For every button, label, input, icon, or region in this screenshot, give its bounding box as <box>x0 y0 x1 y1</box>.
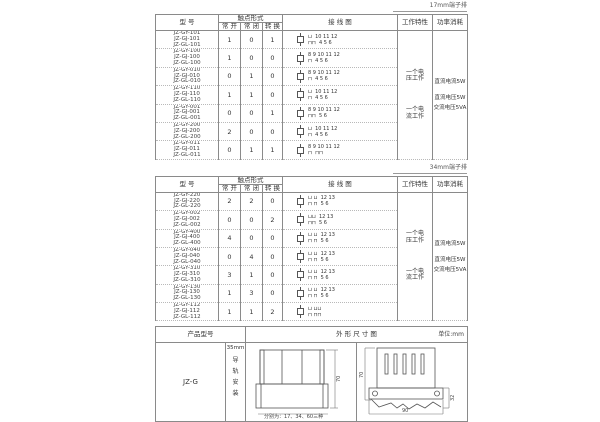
diagram-bottom-line: ⊓⊓ 4 5 6 <box>308 40 337 46</box>
model-cell: JZ-GY-110 JZ-GJ-110 JZ-GL-110 <box>156 86 219 104</box>
diagram-bottom-line: ⊓⊓ 5 6 <box>308 220 333 226</box>
model-cell: JZ-GY-002 JZ-GJ-002 JZ-GL-002 <box>156 211 219 229</box>
col-header-characteristic: 工作特性 <box>398 15 433 31</box>
no-count: 0 <box>219 141 241 159</box>
col-header-normally-open: 常 开 <box>219 184 241 192</box>
terminal-strip-label-34mm: 34mm端子排 <box>393 164 467 174</box>
characteristic-current: 一个电 流工作 <box>398 107 432 120</box>
characteristic-cell: 一个电 压工作 一个电 流工作 <box>398 192 433 321</box>
coil-symbol-icon <box>297 216 304 223</box>
table-row: JZ-GY-220 JZ-GJ-220 JZ-GL-220 2 2 0 ⊔ ⊔ … <box>156 192 468 210</box>
no-count: 0 <box>219 67 241 85</box>
nc-count: 2 <box>241 192 263 210</box>
characteristic-cell: 一个电 压工作 一个电 流工作 <box>398 31 433 160</box>
nc-count: 1 <box>241 67 263 85</box>
col-header-power: 功率消耗 <box>433 15 468 31</box>
col-header-normally-closed: 常 闭 <box>241 184 263 192</box>
wiring-diagram-cell: ⊔ 10 11 12⊓ 4 5 6 <box>283 122 398 140</box>
front-view-svg: 70 分别为：17、34、60三种 <box>248 344 354 420</box>
wiring-diagram-cell: ⊔ ⊔ 12 13⊓ ⊓ 5 6 <box>283 229 398 247</box>
co-count: 0 <box>263 284 283 302</box>
col-header-wiring: 接 线 图 <box>283 15 398 31</box>
coil-symbol-icon <box>297 91 304 98</box>
diagram-top-line: ⊔ 10 11 12 <box>308 89 337 95</box>
no-count: 1 <box>219 303 241 321</box>
wiring-diagram-cell: ⊔ 10 11 12⊓ 4 5 6 <box>283 86 398 104</box>
diagram-top-line: ⊔ 10 11 12 <box>308 126 337 132</box>
nc-count: 0 <box>241 49 263 67</box>
co-count: 2 <box>263 303 283 321</box>
side-width-dim: 90 <box>402 408 408 414</box>
col-header-normally-closed: 常 闭 <box>241 23 263 31</box>
front-width-note: 分别为：17、34、60三种 <box>264 413 323 420</box>
model-cell: JZ-GY-310 JZ-GJ-310 JZ-GL-310 <box>156 266 219 284</box>
coil-symbol-icon <box>297 147 304 154</box>
diagram-bottom-line: ⊓ ⊓ 5 6 <box>308 275 335 281</box>
nc-count: 4 <box>241 247 263 265</box>
co-count: 1 <box>263 31 283 49</box>
outline-dimension-table: 产品型号 外 形 尺 寸 图 单位:mm JZ-G 35mm 导 轨 安 装 <box>155 326 468 422</box>
rail-size-label: 35mm <box>226 345 245 351</box>
nc-count: 1 <box>241 303 263 321</box>
wiring-diagram-cell: ⊔ ⊔ 12 13⊓ ⊓ 5 6 <box>283 247 398 265</box>
model-cell: JZ-GY-011 JZ-GJ-011 JZ-GL-011 <box>156 141 219 159</box>
diagram-bottom-line: ⊓ 4 5 6 <box>308 95 337 101</box>
co-count: 2 <box>263 211 283 229</box>
nc-count: 0 <box>241 229 263 247</box>
co-count: 0 <box>263 49 283 67</box>
power-cell: 直流电流5W 直流电压5W 交流电压5VA <box>433 31 468 160</box>
front-view-drawing: 70 分别为：17、34、60三种 <box>246 343 357 421</box>
wiring-diagram-cell: ⊔ ⊔⊔⊓ ⊓⊓ <box>283 303 398 321</box>
side-view-svg: 70 90 32 <box>357 344 467 420</box>
nc-count: 0 <box>241 122 263 140</box>
diagram-bottom-line: ⊓ ⊓⊓ <box>308 312 321 318</box>
nc-count: 1 <box>241 266 263 284</box>
no-count: 0 <box>219 104 241 122</box>
model-cell: JZ-GY-101 JZ-GJ-101 JZ-GL-101 <box>156 31 219 49</box>
wiring-diagram-cell: ⊔ ⊔ 12 13⊓ ⊓ 5 6 <box>283 192 398 210</box>
power-ac-voltage: 交流电压5VA <box>433 105 467 111</box>
diagram-bottom-line: ⊓ 4 5 6 <box>308 58 340 64</box>
outline-title: 外 形 尺 寸 图 <box>336 330 377 338</box>
diagram-bottom-line: ⊓ ⊓ 5 6 <box>308 238 335 244</box>
table-row: JZ-GY-101 JZ-GJ-101 JZ-GL-101 1 0 1 ⊔ 10… <box>156 31 468 49</box>
col-header-normally-open: 常 开 <box>219 23 241 31</box>
co-count: 0 <box>263 122 283 140</box>
side-view-drawing: 70 90 32 <box>357 343 467 421</box>
nc-count: 0 <box>241 104 263 122</box>
wiring-diagram-cell: 8 9 10 11 12⊓ 4 5 6 <box>283 67 398 85</box>
co-count: 0 <box>263 86 283 104</box>
no-count: 3 <box>219 266 241 284</box>
coil-symbol-icon <box>297 271 304 278</box>
diagram-bottom-line: ⊓ ⊓ 5 6 <box>308 293 335 299</box>
model-cell: JZ-GY-100 JZ-GJ-100 JZ-GL-100 <box>156 49 219 67</box>
characteristic-current: 一个电 流工作 <box>398 269 432 282</box>
diagram-top-line: ⊔ 10 11 12 <box>308 34 337 40</box>
rail-mount-cell: 35mm 导 轨 安 装 <box>226 343 246 422</box>
coil-symbol-icon <box>297 73 304 80</box>
model-cell: JZ-GY-040 JZ-GJ-040 JZ-GL-040 <box>156 247 219 265</box>
spec-table-34mm: 型 号 触点形式 接 线 图 工作特性 功率消耗 常 开 常 闭 转 换 JZ-… <box>155 176 468 322</box>
model-cell: JZ-GY-400 JZ-GJ-400 JZ-GL-400 <box>156 229 219 247</box>
power-dc-voltage: 直流电压5W <box>433 95 467 101</box>
unit-label: 单位:mm <box>438 331 464 338</box>
col-header-outline: 外 形 尺 寸 图 单位:mm <box>246 327 468 343</box>
no-count: 2 <box>219 192 241 210</box>
diagram-bottom-line: ⊓ ⊓ 5 6 <box>308 201 335 207</box>
no-count: 1 <box>219 86 241 104</box>
coil-symbol-icon <box>297 253 304 260</box>
rail-mount-vertical-label: 导 轨 安 装 <box>226 355 245 399</box>
diagram-top-line: ⊔ ⊔ 12 13 <box>308 251 335 257</box>
side-depth-dim: 32 <box>450 395 456 401</box>
model-cell: JZ-GY-001 JZ-GJ-001 JZ-GL-001 <box>156 104 219 122</box>
power-dc-current: 直流电流5W <box>433 241 467 247</box>
model-cell: JZ-GY-010 JZ-GJ-010 JZ-GL-010 <box>156 67 219 85</box>
catalog-page: 17mm端子排 型 号 触点形式 接 线 图 工作特性 功率消耗 常 开 常 闭… <box>155 2 467 422</box>
wiring-diagram-cell: 8 9 10 11 12⊓ ⊓⊓ <box>283 141 398 159</box>
nc-count: 1 <box>241 86 263 104</box>
col-header-power: 功率消耗 <box>433 176 468 192</box>
wiring-diagram-cell: ⊔⊔ 12 13⊓⊓ 5 6 <box>283 211 398 229</box>
co-count: 0 <box>263 229 283 247</box>
col-header-model: 型 号 <box>156 15 219 31</box>
wiring-diagram-cell: 8 9 10 11 12⊓⊓ 5 6 <box>283 104 398 122</box>
co-count: 0 <box>263 247 283 265</box>
outline-drawing-cell: 70 分别为：17、34、60三种 <box>246 343 468 422</box>
front-height-dim: 70 <box>336 376 342 382</box>
power-dc-current: 直流电流5W <box>433 79 467 85</box>
col-header-characteristic: 工作特性 <box>398 176 433 192</box>
diagram-top-line: ⊔ ⊔⊔ <box>308 306 321 312</box>
wiring-diagram-cell: 8 9 10 11 12⊓ 4 5 6 <box>283 49 398 67</box>
spec-table-17mm: 型 号 触点形式 接 线 图 工作特性 功率消耗 常 开 常 闭 转 换 JZ-… <box>155 14 468 160</box>
col-header-product-model: 产品型号 <box>156 327 246 343</box>
power-ac-voltage: 交流电压5VA <box>433 267 467 273</box>
col-header-contact-form: 触点形式 <box>219 176 283 184</box>
no-count: 0 <box>219 247 241 265</box>
diagram-bottom-line: ⊓⊓ 5 6 <box>308 113 340 119</box>
no-count: 1 <box>219 31 241 49</box>
co-count: 0 <box>263 192 283 210</box>
co-count: 0 <box>263 67 283 85</box>
col-header-wiring: 接 线 图 <box>283 176 398 192</box>
co-count: 0 <box>263 266 283 284</box>
model-cell: JZ-GY-130 JZ-GJ-130 JZ-GL-130 <box>156 284 219 302</box>
model-cell: JZ-GY-200 JZ-GJ-200 JZ-GL-200 <box>156 122 219 140</box>
col-header-changeover: 转 换 <box>263 23 283 31</box>
coil-symbol-icon <box>297 110 304 117</box>
terminal-strip-label-17mm: 17mm端子排 <box>393 2 467 12</box>
power-cell: 直流电流5W 直流电压5W 交流电压5VA <box>433 192 468 321</box>
diagram-bottom-line: ⊓ ⊓⊓ <box>308 150 340 156</box>
coil-symbol-icon <box>297 290 304 297</box>
coil-symbol-icon <box>297 55 304 62</box>
characteristic-voltage: 一个电 压工作 <box>398 231 432 244</box>
wiring-diagram-cell: ⊔ ⊔ 12 13⊓ ⊓ 5 6 <box>283 284 398 302</box>
col-header-contact-form: 触点形式 <box>219 15 283 23</box>
coil-symbol-icon <box>297 36 304 43</box>
power-dc-voltage: 直流电压5W <box>433 257 467 263</box>
no-count: 4 <box>219 229 241 247</box>
coil-symbol-icon <box>297 308 304 315</box>
co-count: 1 <box>263 141 283 159</box>
coil-symbol-icon <box>297 235 304 242</box>
diagram-bottom-line: ⊓ 4 5 6 <box>308 76 340 82</box>
no-count: 0 <box>219 211 241 229</box>
diagram-bottom-line: ⊓ ⊓ 5 6 <box>308 257 335 263</box>
no-count: 1 <box>219 284 241 302</box>
characteristic-voltage: 一个电 压工作 <box>398 70 432 83</box>
nc-count: 0 <box>241 211 263 229</box>
co-count: 1 <box>263 104 283 122</box>
product-model-cell: JZ-G <box>156 343 226 422</box>
no-count: 1 <box>219 49 241 67</box>
no-count: 2 <box>219 122 241 140</box>
diagram-bottom-line: ⊓ 4 5 6 <box>308 132 337 138</box>
wiring-diagram-cell: ⊔ 10 11 12⊓⊓ 4 5 6 <box>283 31 398 49</box>
nc-count: 3 <box>241 284 263 302</box>
col-header-model: 型 号 <box>156 176 219 192</box>
coil-symbol-icon <box>297 198 304 205</box>
nc-count: 1 <box>241 141 263 159</box>
model-cell: JZ-GY-112 JZ-GJ-112 JZ-GL-112 <box>156 303 219 321</box>
diagram-top-line: ⊔⊔ 12 13 <box>308 214 333 220</box>
col-header-changeover: 转 换 <box>263 184 283 192</box>
model-cell: JZ-GY-220 JZ-GJ-220 JZ-GL-220 <box>156 192 219 210</box>
nc-count: 0 <box>241 31 263 49</box>
wiring-diagram-cell: ⊔ ⊔ 12 13⊓ ⊓ 5 6 <box>283 266 398 284</box>
side-height-dim: 70 <box>359 372 365 378</box>
coil-symbol-icon <box>297 128 304 135</box>
